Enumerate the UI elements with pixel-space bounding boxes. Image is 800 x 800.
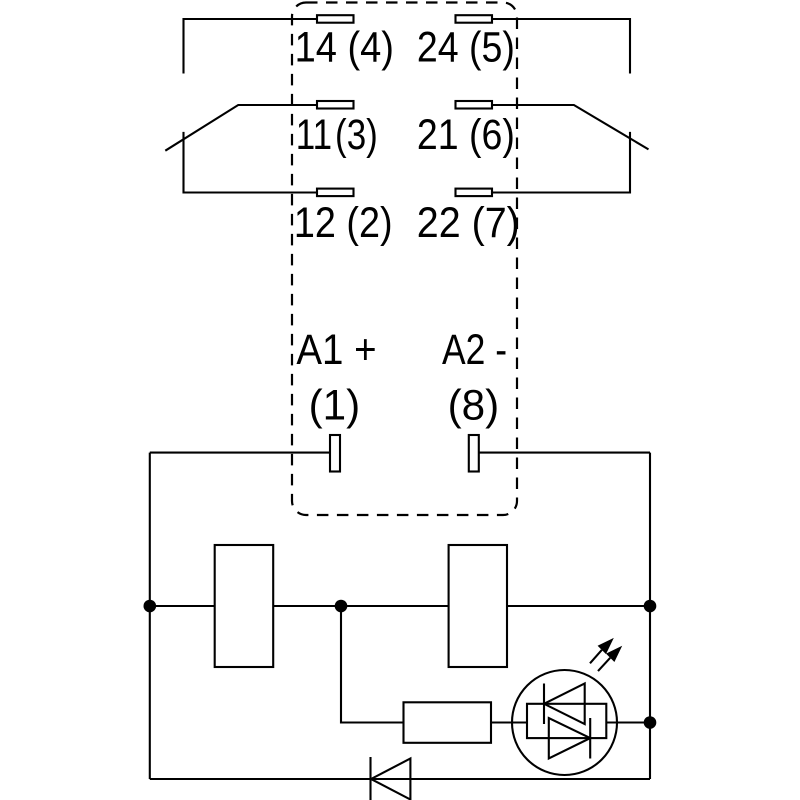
svg-text:A2 -: A2 - [442, 326, 507, 374]
svg-text:(8): (8) [448, 381, 500, 429]
svg-text:14 (4): 14 (4) [295, 24, 394, 72]
svg-text:(1): (1) [309, 381, 361, 429]
svg-text:21 (6): 21 (6) [417, 111, 515, 159]
svg-text:11 (3): 11 (3) [296, 111, 378, 159]
svg-text:22 (7): 22 (7) [417, 199, 520, 247]
svg-text:24 (5): 24 (5) [417, 24, 515, 72]
svg-text:12 (2): 12 (2) [294, 199, 393, 247]
svg-text:A1 +: A1 + [296, 326, 376, 374]
